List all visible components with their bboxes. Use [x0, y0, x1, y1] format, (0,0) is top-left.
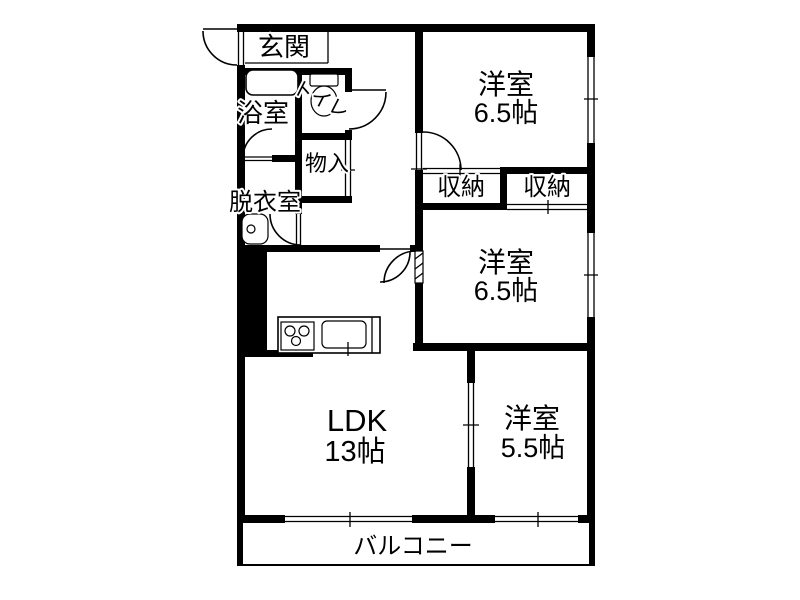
window-small-room-balcony	[495, 512, 578, 527]
label-western-small-size: 5.5帖	[501, 433, 566, 463]
sliding-door-closet-right	[507, 200, 588, 214]
label-storage: 物入	[305, 151, 349, 176]
label-western-mid-size: 6.5帖	[474, 276, 539, 306]
label-closet-left: 収納	[437, 174, 485, 201]
wall	[302, 133, 352, 140]
wall	[237, 515, 285, 523]
wall	[415, 203, 507, 210]
wall	[467, 351, 475, 383]
washbasin-icon	[242, 214, 268, 244]
bathroom-door-threshold	[245, 157, 272, 161]
balcony-wall-right	[589, 523, 595, 566]
wall	[302, 196, 352, 203]
balcony-wall-left	[237, 523, 243, 566]
label-western-small-name: 洋室	[504, 403, 560, 434]
wall	[415, 283, 423, 351]
floor-plan-page: 玄関 浴室 トイレ 物入 脱衣室 収納 収納 洋室 6.5帖 洋室 6.5帖 洋…	[0, 0, 800, 600]
entrance-opening-lines	[239, 32, 244, 65]
balcony-edge-line	[237, 564, 595, 566]
wall	[415, 170, 423, 251]
label-western-top-size: 6.5帖	[474, 98, 539, 128]
wall	[587, 24, 595, 57]
label-ldk-name: LDK	[327, 403, 388, 438]
wall	[237, 357, 245, 515]
wall	[500, 167, 588, 174]
mid-room-door	[384, 251, 423, 283]
floor-plan-drawing: 玄関 浴室 トイレ 物入 脱衣室 収納 収納 洋室 6.5帖 洋室 6.5帖 洋…	[0, 0, 800, 600]
wall	[237, 245, 380, 252]
wall	[272, 155, 302, 162]
sliding-door-ldk-small-room	[463, 383, 479, 467]
label-dressing-room: 脱衣室	[229, 189, 301, 216]
room-labels: 玄関 浴室 トイレ 物入 脱衣室 収納 収納 洋室 6.5帖 洋室 6.5帖 洋…	[229, 32, 571, 560]
wall	[467, 467, 475, 523]
window-mid-room-right	[584, 233, 598, 317]
label-genkan: 玄関	[258, 32, 310, 62]
wall	[413, 343, 595, 351]
label-western-top-name: 洋室	[478, 69, 534, 100]
label-bathroom: 浴室	[237, 98, 289, 128]
window-top-room-right	[584, 57, 598, 143]
label-ldk-size: 13帖	[324, 435, 385, 468]
label-balcony: バルコニー	[353, 533, 473, 560]
window-ldk-balcony	[285, 512, 412, 527]
dressing-door-threshold	[297, 214, 301, 245]
wall-pipe-shaft	[237, 252, 267, 357]
wall	[587, 143, 595, 233]
walls	[237, 24, 595, 566]
entrance-door	[203, 29, 237, 65]
bathroom-door-arc	[243, 129, 272, 158]
wall	[345, 68, 352, 92]
wall	[578, 515, 595, 523]
stove-icon	[281, 322, 314, 350]
kitchen-counter	[278, 317, 380, 356]
wall	[412, 515, 495, 523]
top-room-door	[411, 132, 461, 170]
label-closet-right: 収納	[523, 174, 571, 201]
toilet-door	[349, 90, 386, 129]
label-western-mid-name: 洋室	[478, 247, 534, 278]
wall	[415, 24, 423, 133]
